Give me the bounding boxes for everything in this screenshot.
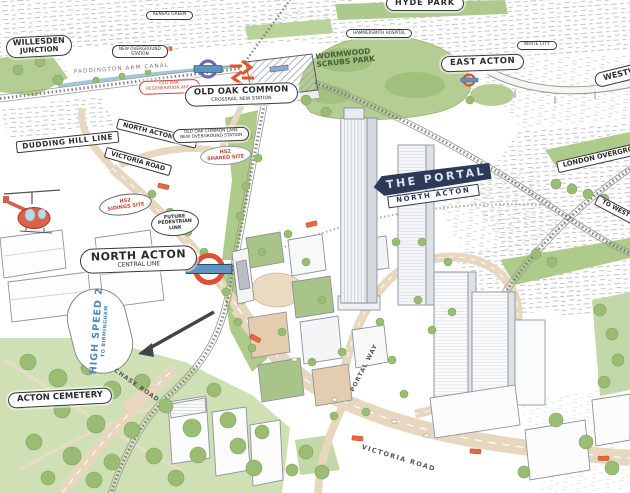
label-hyde-park: HYDE PARK <box>386 0 464 11</box>
label-text: JUNCTION <box>13 46 65 57</box>
label-text: HYDE PARK <box>395 0 455 7</box>
label-white-city: WHITE CITY <box>517 41 557 50</box>
bus-icon <box>470 449 481 454</box>
label-hammersmith-hospital: HAMMERSMITH HOSPITAL <box>346 29 412 38</box>
label-text: STATION <box>119 52 161 57</box>
label-old-oak-common-lane: OLD OAK COMMON LANE NEW OVERGROUND STATI… <box>173 127 250 143</box>
car-icon <box>424 434 429 437</box>
label-text: EAST ACTON <box>450 56 516 68</box>
car-icon <box>392 420 397 423</box>
label-north-acton-station: NORTH ACTON CENTRAL LINE <box>80 245 198 274</box>
label-text: HAMMERSMITH HOSPITAL <box>353 30 405 35</box>
label-willesden-junction: WILLESDEN JUNCTION <box>6 34 73 58</box>
label-old-oak-common-station: OLD OAK COMMON CROSSRAIL NEW STATION <box>185 82 298 107</box>
label-east-acton: EAST ACTON <box>441 54 525 72</box>
car-icon <box>332 398 337 401</box>
label-text: KENSAL GREEN <box>153 12 186 17</box>
bus-icon <box>598 456 609 461</box>
label-text: WHITE CITY <box>524 42 550 47</box>
label-text: NEW OVERGROUND STATION <box>180 134 242 141</box>
high-speed-2-text: HIGH SPEED 2 TO BIRMINGHAM <box>89 281 112 382</box>
label-text: SHARED SITE <box>207 154 244 162</box>
bus-icon <box>352 435 363 441</box>
label-text: ACTON CEMETERY <box>17 390 103 404</box>
illustrated-map-north-acton: WILLESDEN JUNCTION KENSAL GREEN NEW OVER… <box>0 0 630 493</box>
car-icon <box>292 358 297 361</box>
label-kensal-green: KENSAL GREEN <box>146 11 193 20</box>
label-new-overground-station: NEW OVERGROUND STATION <box>112 45 168 58</box>
portal-tower <box>338 108 380 310</box>
